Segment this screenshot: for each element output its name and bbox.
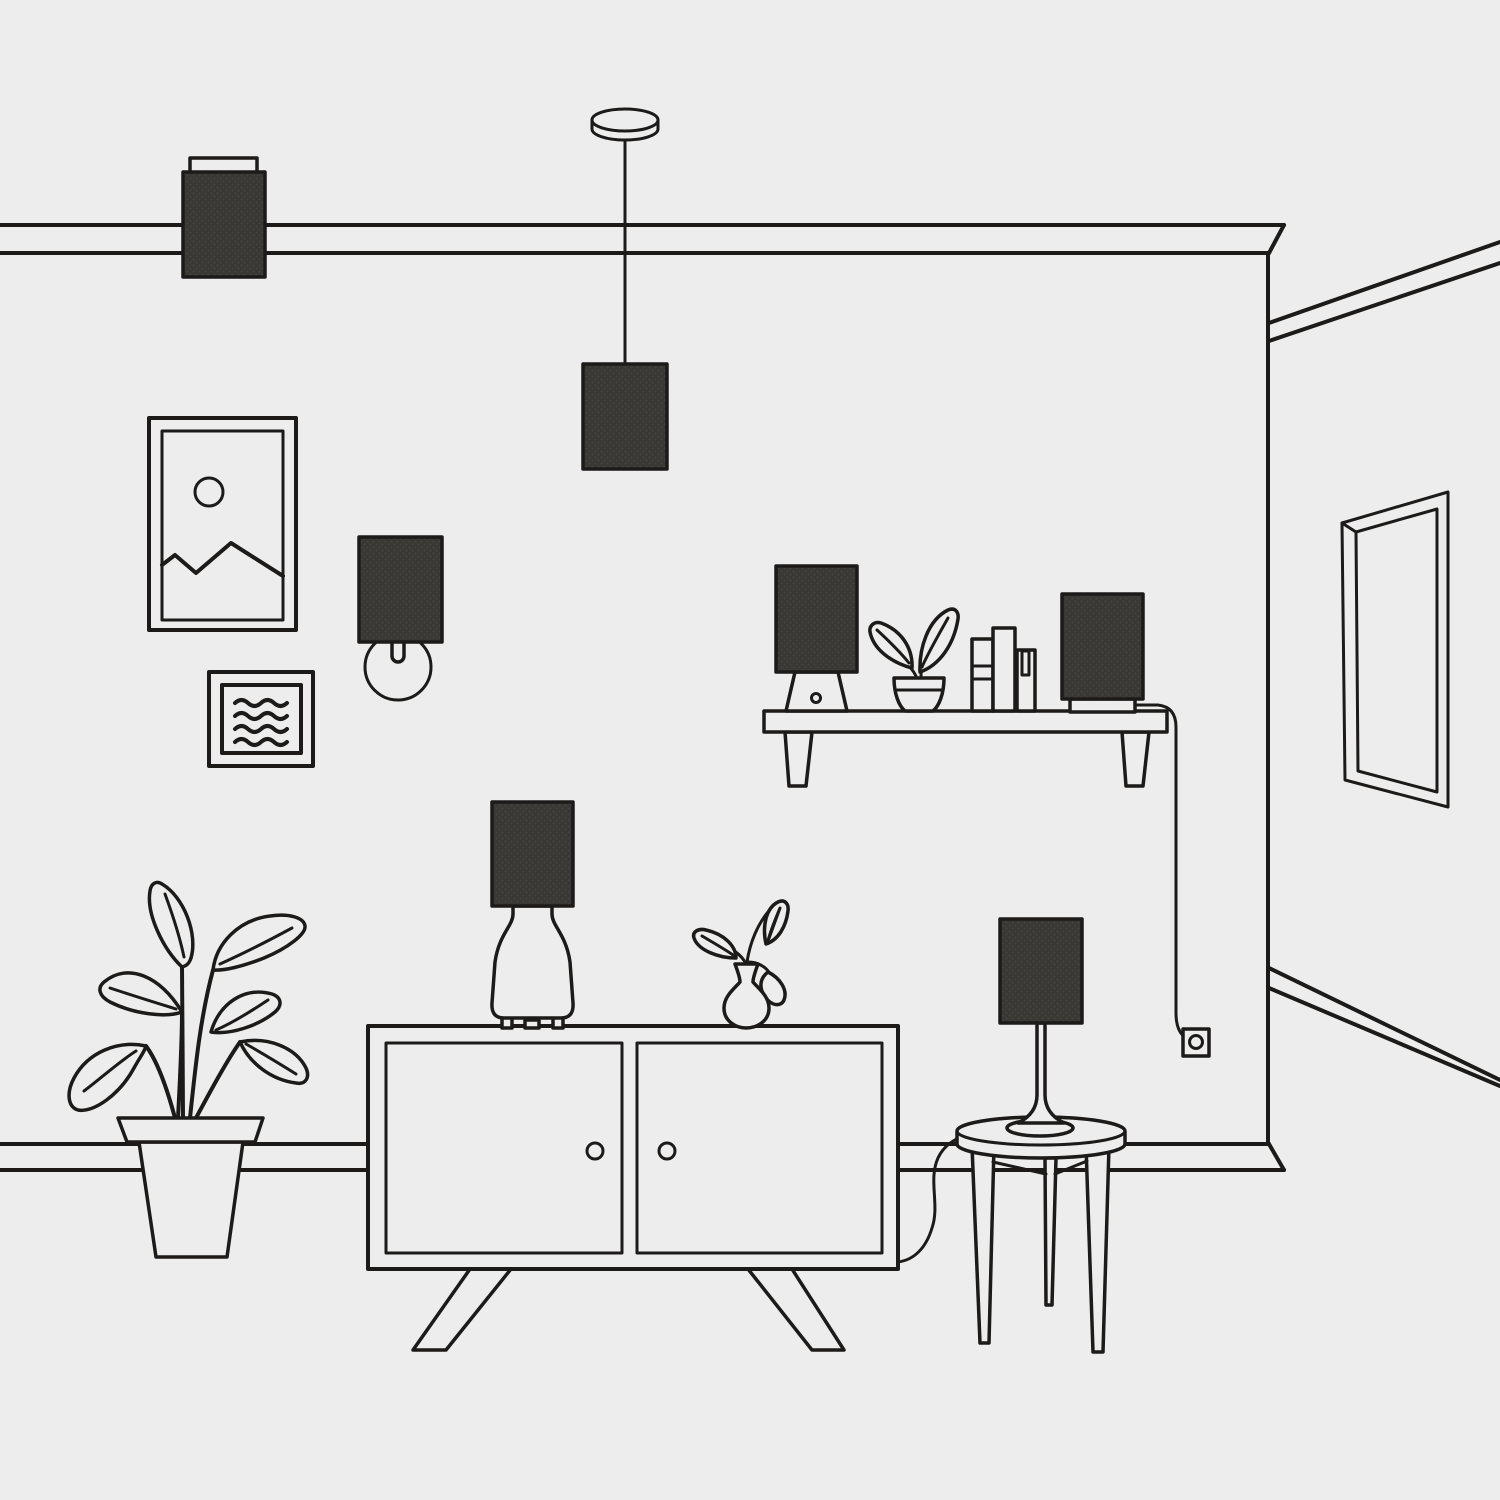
pot-body [139,1142,243,1257]
lampshade [359,537,442,642]
lampshade [583,364,667,469]
lampshade [1062,594,1143,699]
lampshade [492,802,573,906]
picture-frame-mountains [149,418,296,630]
lamp-cord-plug [525,1020,539,1028]
lampshade [1000,919,1082,1023]
speaker-base [1070,699,1135,712]
pot-rim [118,1118,263,1142]
shelf-bracket-right [1122,732,1149,786]
picture-frame-abstract [209,672,313,766]
book [1017,650,1035,711]
frame-outer [149,418,296,630]
shelf-bracket-left [785,732,812,786]
shelf-board [764,711,1167,732]
sideboard-body [368,1026,898,1269]
lampshade [776,566,857,672]
living-room-illustration [0,0,1500,1500]
book [972,639,993,711]
table-leg-center [1045,1158,1056,1305]
lamp-base [786,672,847,711]
plant-pot [894,678,944,711]
book [993,628,1015,711]
wall-outlet [1183,1029,1209,1056]
ceiling-mounted-lamp [183,158,265,277]
illustration-canvas [0,0,1500,1500]
lampshade [183,172,265,277]
